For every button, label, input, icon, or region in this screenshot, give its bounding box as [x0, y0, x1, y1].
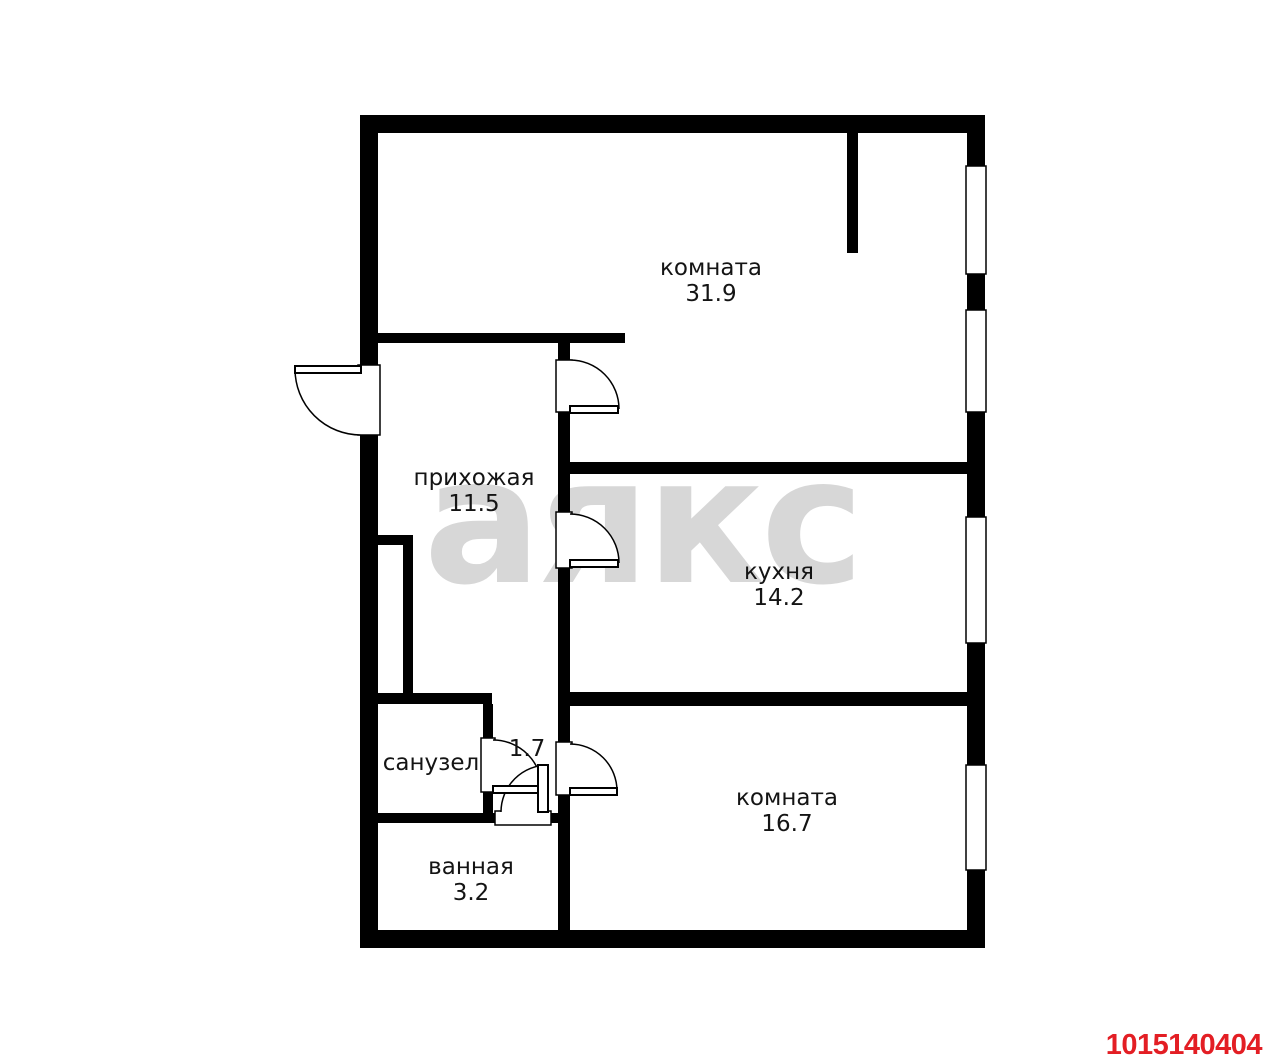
door-opening: [556, 360, 572, 412]
room-name-label: комната: [736, 785, 838, 811]
door-leaf: [570, 560, 618, 567]
door-opening: [495, 811, 551, 825]
room-area-label: 3.2: [453, 880, 490, 906]
door-leaf: [570, 406, 618, 413]
room-name-label: прихожая: [414, 465, 535, 491]
window: [966, 166, 986, 274]
windows-layer: [966, 166, 986, 870]
door-leaf: [295, 366, 361, 373]
room-name-label: санузел: [383, 750, 479, 776]
wall-segment: [378, 535, 413, 545]
floorplan-page: аякс комната31.9прихожая11.5кухня14.2сан…: [0, 0, 1280, 1062]
wall-segment: [847, 133, 858, 253]
plan-id: 1015140404: [1106, 1029, 1263, 1061]
door-leaf: [570, 788, 617, 795]
wall-segment: [568, 462, 967, 474]
room-name-label: ванная: [428, 854, 514, 880]
wall-segment: [403, 545, 413, 693]
wall-segment: [378, 693, 492, 704]
door-opening: [481, 738, 495, 792]
wall-segment: [558, 692, 967, 706]
door-swing-area: [570, 360, 619, 409]
room-area-label: 14.2: [753, 585, 804, 611]
wall-segment: [558, 333, 570, 930]
window: [966, 517, 986, 643]
room-area-label: 16.7: [761, 811, 812, 837]
wall-segment: [360, 115, 378, 948]
wall-segment: [360, 930, 985, 948]
wall-segment: [378, 333, 625, 343]
door-opening: [358, 365, 380, 435]
wall-segment: [360, 115, 985, 133]
door-swing-area: [295, 369, 361, 435]
door-swing-area: [570, 744, 617, 791]
room-name-label: кухня: [744, 559, 814, 585]
room-area-label: 31.9: [685, 281, 736, 307]
room-name-label: комната: [660, 255, 762, 281]
room-area-label: 11.5: [448, 491, 499, 517]
door-leaf: [493, 786, 542, 793]
room-area-label: 1.7: [509, 736, 546, 762]
floorplan: аякс комната31.9прихожая11.5кухня14.2сан…: [0, 0, 1280, 1062]
door-leaf: [538, 765, 548, 812]
window: [966, 765, 986, 870]
window: [966, 310, 986, 412]
